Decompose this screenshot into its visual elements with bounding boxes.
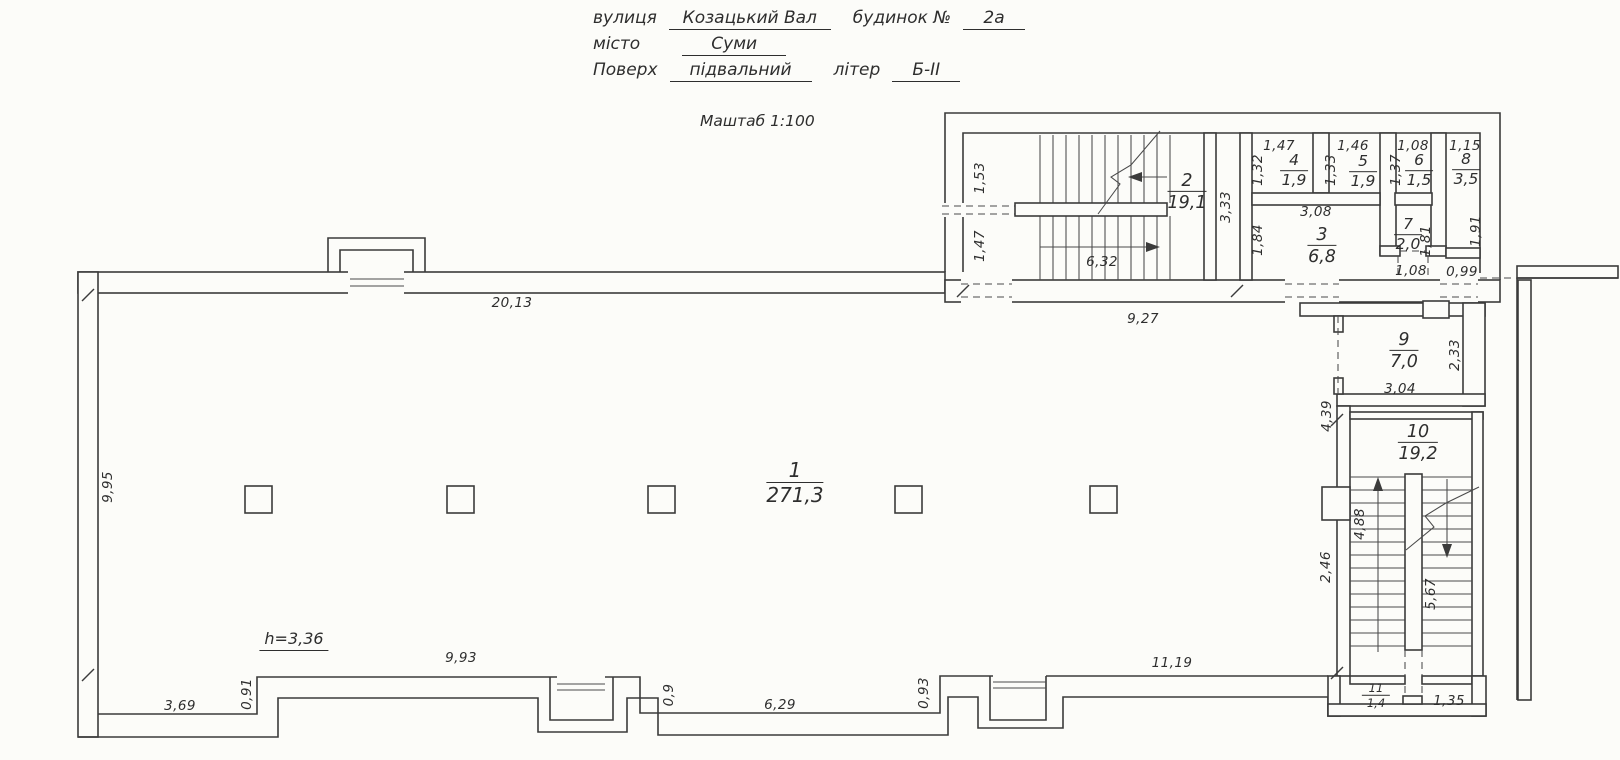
dimension-label: 0,9 — [661, 684, 677, 707]
room-number: 7 — [1394, 216, 1422, 235]
dimension-label: 1,32 — [1250, 154, 1266, 186]
dimension-ticks — [82, 285, 1343, 681]
plan-drawing — [0, 0, 1620, 760]
dimension-label: 6,32 — [1086, 254, 1118, 270]
dimension-label: 2,46 — [1318, 551, 1334, 583]
room-label-1: 1271,3 — [766, 459, 823, 507]
room-label-3: 36,8 — [1307, 225, 1336, 267]
room-area: 19,1 — [1168, 192, 1207, 213]
room-label-7: 72,0 — [1394, 216, 1422, 254]
room-number: 8 — [1452, 151, 1480, 170]
room-label-8: 83,5 — [1452, 151, 1480, 189]
room-number: 6 — [1405, 152, 1433, 171]
dimension-label: 3,08 — [1300, 204, 1332, 220]
room-number: 5 — [1349, 153, 1377, 172]
dimension-label: 0,99 — [1446, 264, 1478, 280]
dimension-label: 1,33 — [1323, 154, 1339, 186]
room-label-6: 61,5 — [1405, 152, 1433, 190]
dimension-label: 1,37 — [1388, 154, 1404, 186]
dimension-label: 1,35 — [1433, 693, 1465, 709]
room-area: 6,8 — [1307, 246, 1336, 267]
room-area: 1,5 — [1405, 171, 1433, 190]
room-number: 9 — [1389, 330, 1418, 351]
dimension-label: 5,67 — [1423, 578, 1439, 610]
ground-hatching — [1480, 266, 1618, 700]
room-number: 1 — [766, 459, 823, 483]
room-area: 1,4 — [1362, 696, 1390, 710]
dimension-label: 9,93 — [445, 650, 477, 666]
dimension-label: 3,33 — [1218, 191, 1234, 223]
dimension-label: 4,39 — [1319, 400, 1335, 432]
room-label-4: 41,9 — [1280, 152, 1308, 190]
dimension-label: 0,93 — [916, 677, 932, 709]
dimension-label: 4,88 — [1352, 508, 1368, 540]
dimension-label: 11,19 — [1152, 655, 1193, 671]
dimension-label: 6,29 — [764, 697, 796, 713]
room-number: 11 — [1362, 682, 1390, 696]
dimension-label: 9,27 — [1127, 311, 1159, 327]
dimension-label: 9,95 — [100, 471, 116, 503]
room-area: 7,0 — [1389, 351, 1418, 372]
room-number: 2 — [1168, 171, 1207, 192]
room-label-5: 51,9 — [1349, 153, 1377, 191]
room-area: 1,9 — [1349, 172, 1377, 191]
room-number: 10 — [1398, 422, 1438, 443]
dimension-label: 1,84 — [1250, 224, 1266, 256]
ceiling-height-note: h=3,36 — [259, 629, 328, 651]
dimension-label: 0,91 — [239, 678, 255, 710]
dimension-label: 1,53 — [972, 162, 988, 194]
dimension-label: 1,91 — [1468, 215, 1484, 247]
dimension-label: 20,13 — [492, 295, 533, 311]
dimension-label: 1,47 — [972, 230, 988, 262]
dimension-label: 3,04 — [1384, 381, 1416, 397]
dimension-label: 3,69 — [164, 698, 196, 714]
room-area: 3,5 — [1452, 170, 1480, 189]
room-label-10: 1019,2 — [1398, 422, 1438, 464]
dimension-label: 1,08 — [1395, 263, 1427, 279]
room-area: 1,9 — [1280, 171, 1308, 190]
room-label-11: 111,4 — [1362, 682, 1390, 710]
room-number: 4 — [1280, 152, 1308, 171]
room-label-2: 219,1 — [1168, 171, 1207, 213]
room-area: 19,2 — [1398, 443, 1438, 464]
columns — [245, 486, 1117, 513]
room-number: 3 — [1307, 225, 1336, 246]
floor-plan-sheet: вулиця Козацький Вал будинок № 2а місто … — [0, 0, 1620, 760]
room-area: 271,3 — [766, 483, 823, 507]
dimension-label: 2,33 — [1447, 339, 1463, 371]
room-label-9: 97,0 — [1389, 330, 1418, 372]
room-area: 2,0 — [1394, 235, 1422, 254]
